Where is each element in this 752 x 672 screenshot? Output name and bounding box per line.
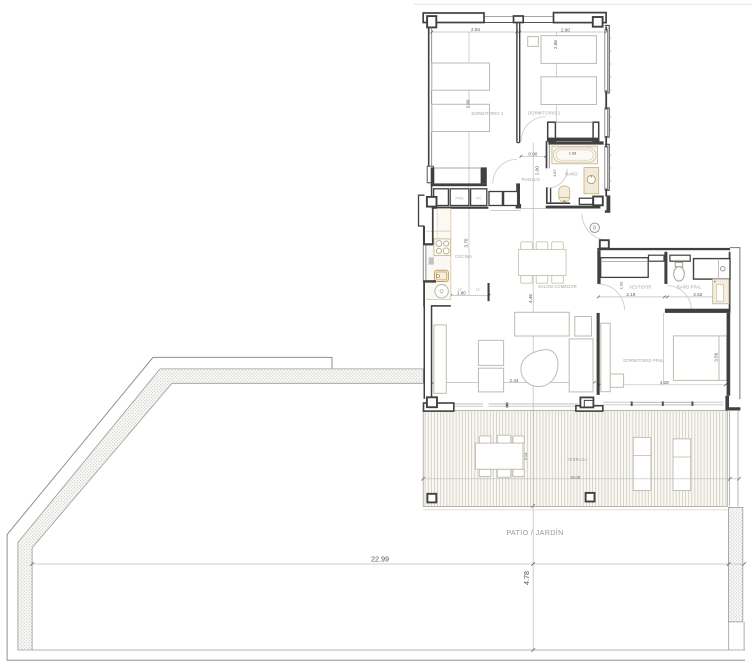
- svg-text:DORMITORIO PPAL: DORMITORIO PPAL: [623, 358, 664, 363]
- svg-text:2.19: 2.19: [626, 292, 635, 297]
- svg-text:DORMITORIO 1: DORMITORIO 1: [471, 111, 504, 116]
- svg-text:4.46: 4.46: [528, 294, 533, 303]
- svg-text:FRIG: FRIG: [455, 196, 463, 200]
- svg-text:2.00: 2.00: [534, 166, 539, 175]
- svg-text:1.68: 1.68: [569, 151, 577, 156]
- svg-text:1F: 1F: [458, 288, 462, 292]
- svg-text:3.60: 3.60: [465, 99, 470, 108]
- svg-text:4.28: 4.28: [660, 380, 669, 385]
- svg-text:2.60: 2.60: [561, 28, 570, 33]
- svg-text:FR: FR: [476, 196, 481, 200]
- svg-text:BAÑO PPAL: BAÑO PPAL: [677, 284, 702, 289]
- svg-text:1F: 1F: [476, 288, 480, 292]
- svg-text:2.86: 2.86: [553, 40, 558, 49]
- svg-text:PATIO / JARDÍN: PATIO / JARDÍN: [506, 528, 563, 537]
- svg-text:2.84: 2.84: [471, 27, 480, 32]
- svg-text:BAÑO: BAÑO: [565, 171, 577, 176]
- svg-text:2.44: 2.44: [510, 378, 519, 383]
- svg-text:3.56: 3.56: [713, 352, 718, 361]
- svg-text:22.99: 22.99: [371, 555, 389, 564]
- svg-text:DORMITORIO 2: DORMITORIO 2: [528, 111, 561, 116]
- svg-text:3.70: 3.70: [464, 238, 469, 247]
- svg-text:1.87: 1.87: [552, 169, 557, 177]
- svg-text:0.90: 0.90: [528, 151, 537, 156]
- svg-text:TERRAZA: TERRAZA: [567, 457, 587, 462]
- svg-text:18.08: 18.08: [570, 474, 581, 479]
- svg-text:1.93: 1.93: [618, 282, 623, 290]
- svg-text:SALÓN COMEDOR: SALÓN COMEDOR: [538, 284, 577, 289]
- svg-text:PASILLO: PASILLO: [522, 177, 540, 182]
- svg-text:4.78: 4.78: [522, 571, 531, 585]
- svg-text:2.52: 2.52: [693, 292, 702, 297]
- svg-text:VESTIDOR: VESTIDOR: [629, 284, 651, 289]
- svg-text:3.14: 3.14: [523, 452, 528, 461]
- svg-text:COCINA: COCINA: [455, 254, 472, 259]
